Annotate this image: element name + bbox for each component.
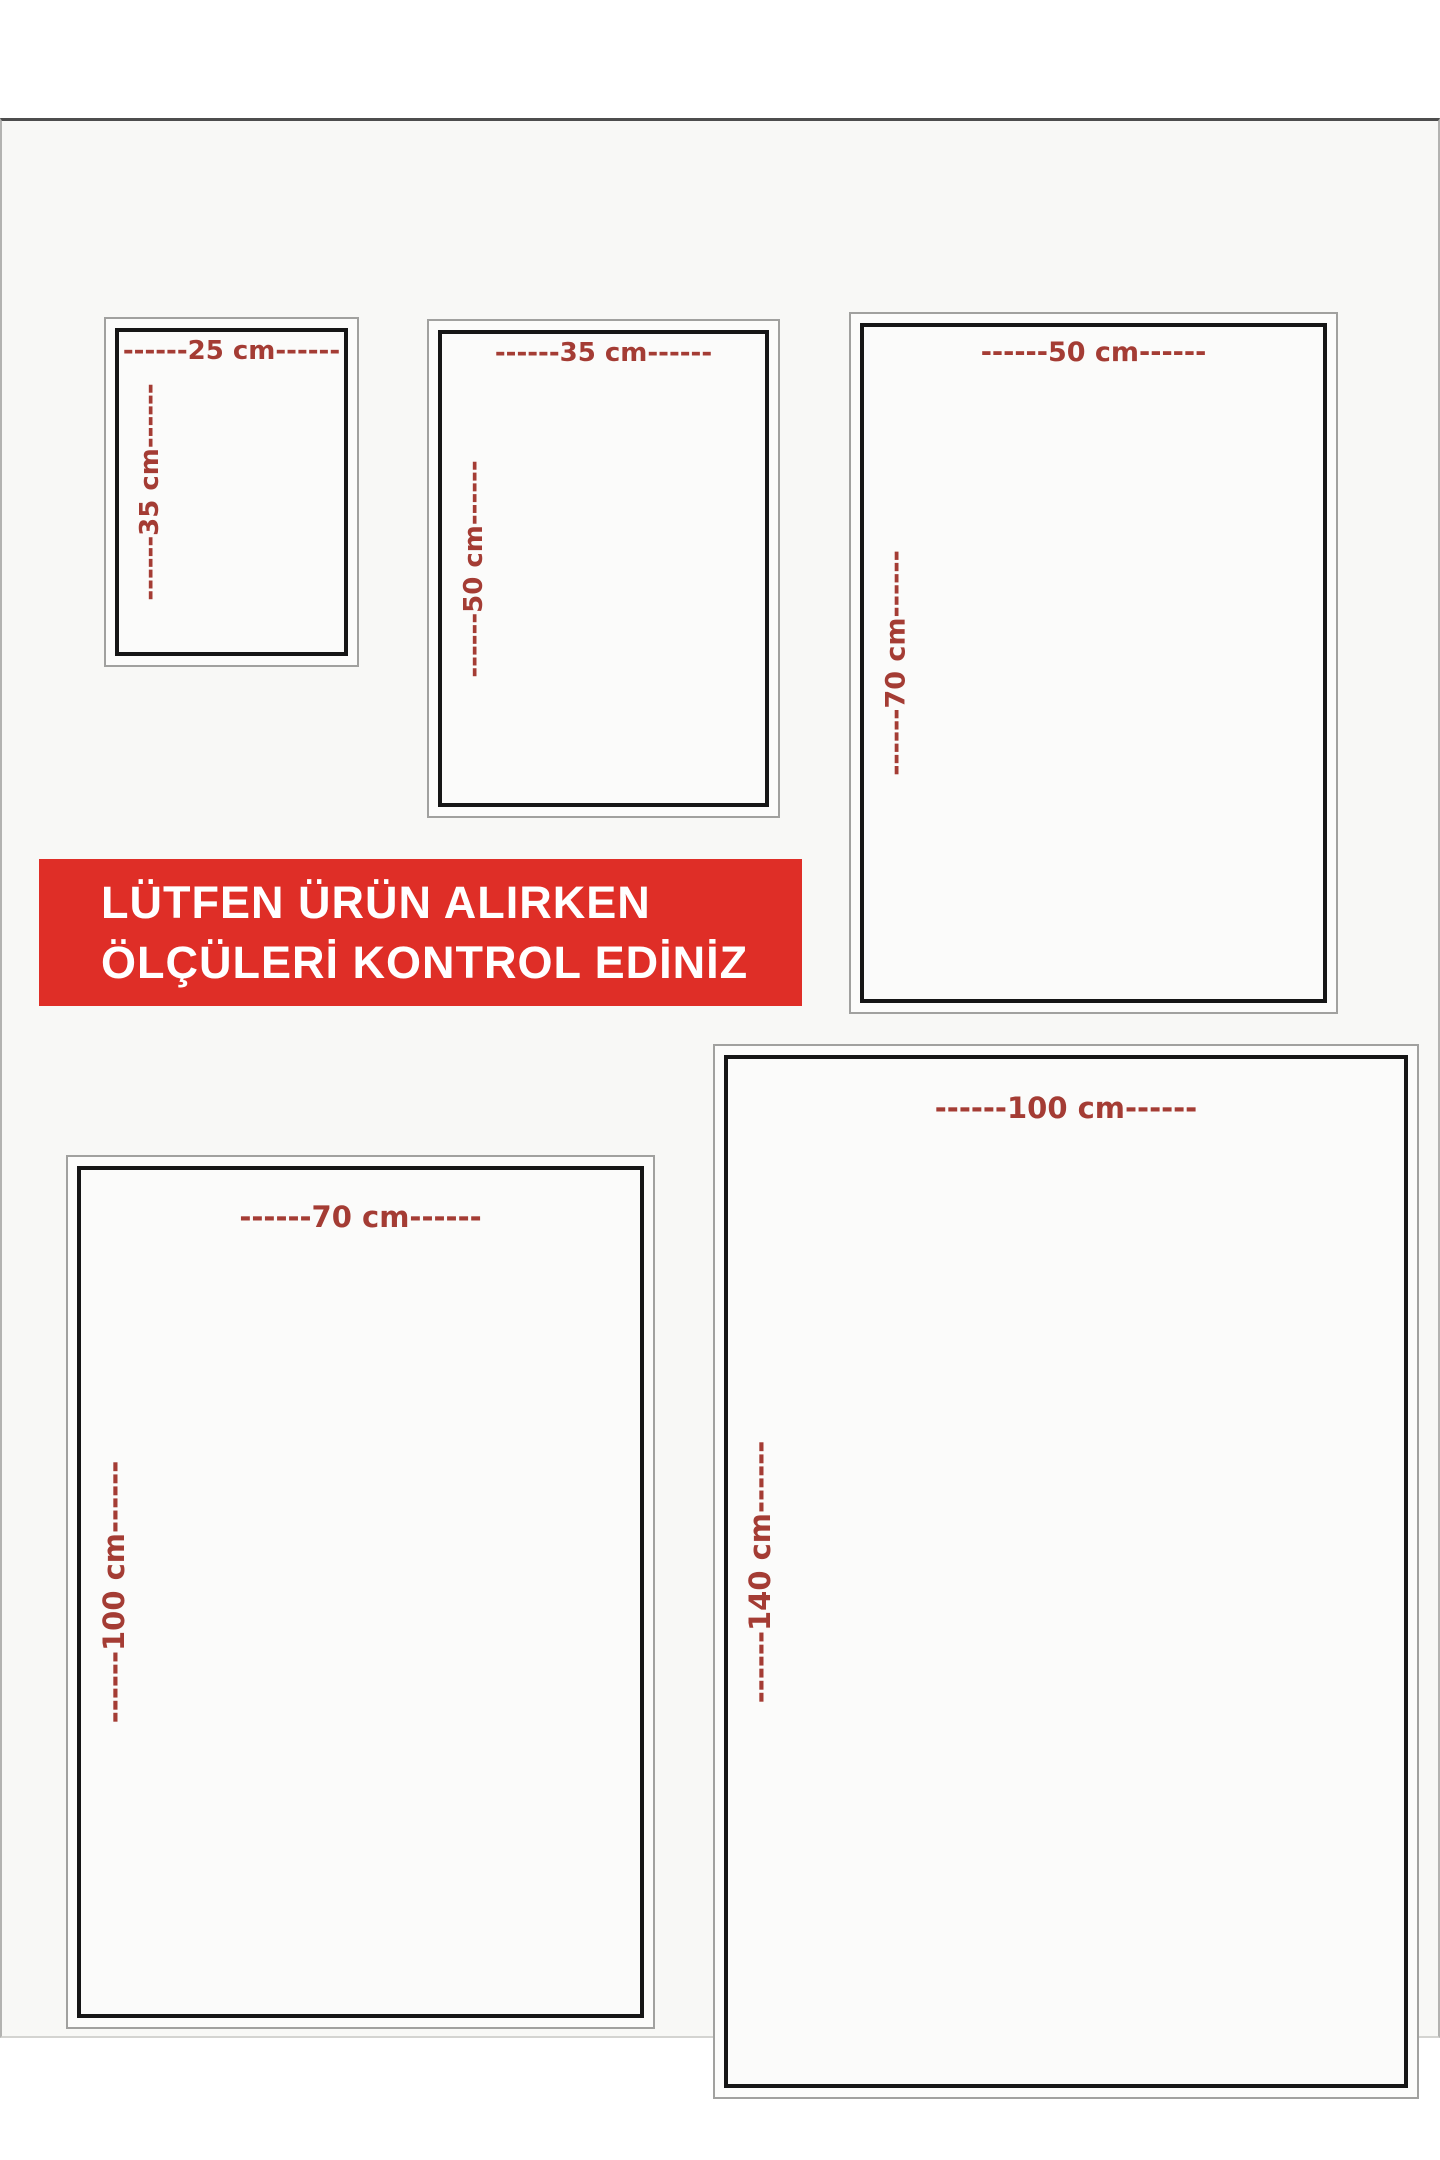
- width-dimension-label: ------70 cm------: [81, 1200, 640, 1234]
- warning-banner-line-1: LÜTFEN ÜRÜN ALIRKEN: [101, 873, 802, 933]
- size-box-100x140: ------100 cm------ ------140 cm------: [713, 1044, 1419, 2099]
- width-dimension-label: ------100 cm------: [728, 1091, 1404, 1125]
- height-dimension-label: ------70 cm------: [881, 550, 912, 776]
- size-box-35x50: ------35 cm------ ------50 cm------: [427, 319, 780, 818]
- width-dimension-label: ------35 cm------: [442, 338, 765, 368]
- size-chart: ------25 cm------ ------35 cm------ ----…: [0, 0, 1440, 2160]
- height-dimension-label: ------50 cm------: [459, 460, 489, 677]
- size-box-50x70: ------50 cm------ ------70 cm------: [849, 312, 1338, 1014]
- size-box-25x35-inner-frame: ------25 cm------ ------35 cm------: [115, 328, 348, 656]
- size-box-35x50-inner-frame: ------35 cm------ ------50 cm------: [438, 330, 769, 807]
- size-box-70x100-inner-frame: ------70 cm------ ------100 cm------: [77, 1166, 644, 2018]
- width-dimension-label: ------25 cm------: [119, 336, 344, 366]
- size-box-100x140-inner-frame: ------100 cm------ ------140 cm------: [724, 1055, 1408, 2088]
- size-box-70x100: ------70 cm------ ------100 cm------: [66, 1155, 655, 2029]
- height-dimension-label: ------35 cm------: [135, 383, 165, 600]
- size-box-25x35: ------25 cm------ ------35 cm------: [104, 317, 359, 667]
- warning-banner: LÜTFEN ÜRÜN ALIRKEN ÖLÇÜLERİ KONTROL EDİ…: [39, 859, 802, 1006]
- width-dimension-label: ------50 cm------: [864, 337, 1323, 368]
- warning-banner-line-2: ÖLÇÜLERİ KONTROL EDİNİZ: [101, 933, 802, 993]
- page-canvas: ------25 cm------ ------35 cm------ ----…: [0, 118, 1440, 2038]
- size-box-50x70-inner-frame: ------50 cm------ ------70 cm------: [860, 323, 1327, 1003]
- height-dimension-label: ------100 cm------: [97, 1461, 131, 1723]
- height-dimension-label: ------140 cm------: [743, 1440, 777, 1702]
